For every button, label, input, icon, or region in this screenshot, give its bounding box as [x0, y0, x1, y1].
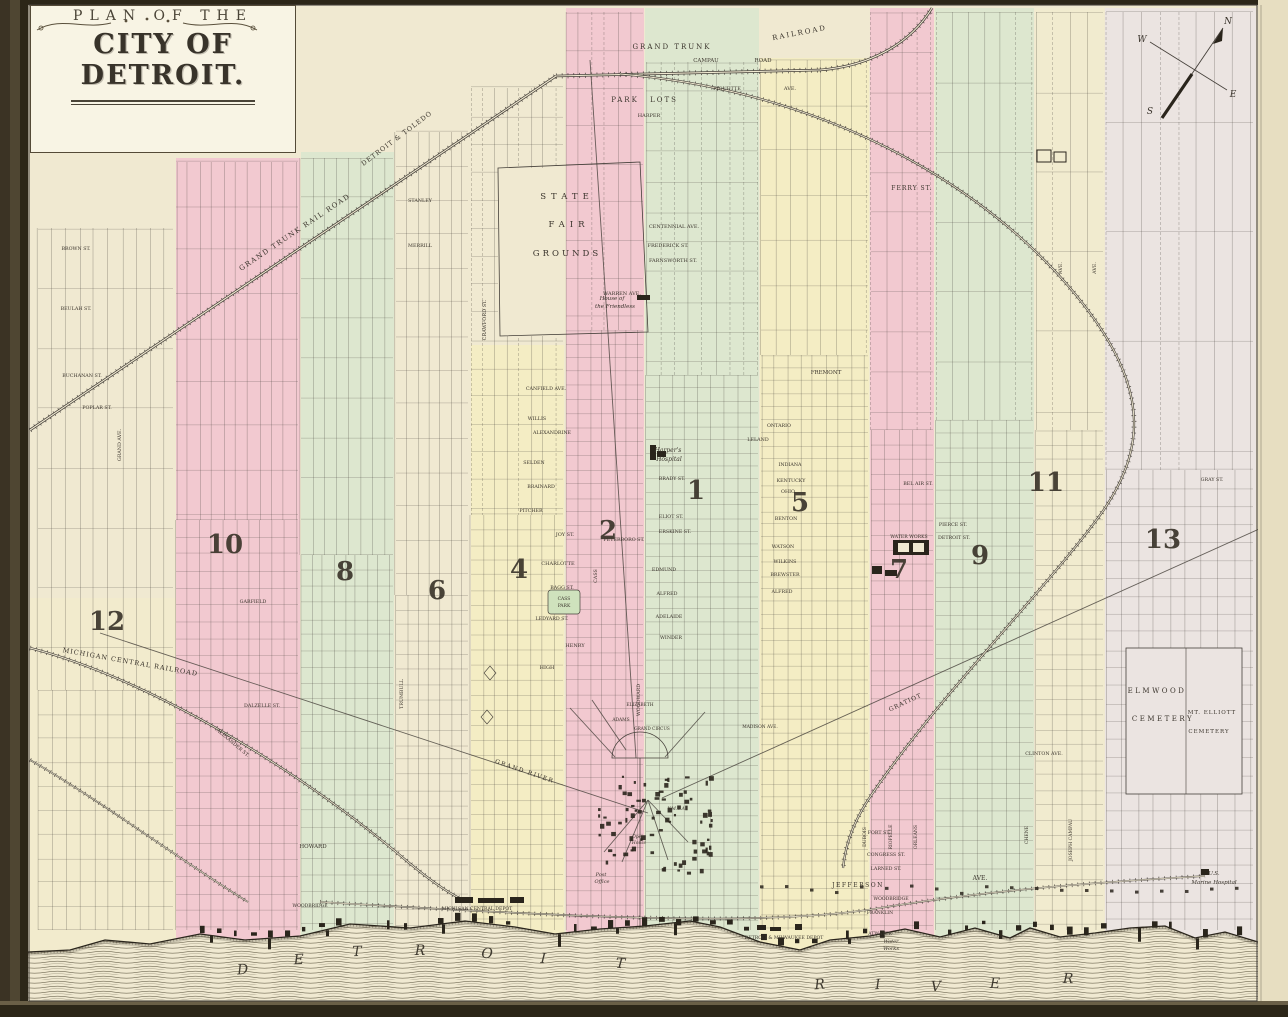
landmark-building: [770, 927, 781, 931]
river-name-letter: O: [481, 946, 493, 962]
street-label: HARPER: [638, 113, 661, 119]
landmark-building: [455, 897, 473, 903]
street-label: ONTARIO: [767, 423, 791, 429]
river-name-letter: R: [813, 977, 826, 994]
ward-band: [935, 8, 1034, 1000]
street-label: JEFFERSON: [831, 882, 884, 889]
ward-number: 5: [791, 488, 809, 518]
river-name-letter: R: [414, 943, 426, 959]
street-label: BRADY ST.: [659, 476, 686, 482]
street-label: CRAWFORD ST.: [482, 299, 488, 340]
street-label: HOWARD: [299, 844, 327, 850]
street-label: WINDER: [660, 635, 682, 641]
street-label: ERSKINE ST.: [659, 529, 692, 535]
street-label: GRAY ST.: [1201, 477, 1224, 483]
street-label: CLINTON AVE.: [1025, 751, 1063, 757]
street-label: AVE.: [783, 86, 797, 92]
street-label: GRAND AVE.: [117, 428, 123, 461]
street-label: CAMPAU: [693, 58, 719, 64]
title-flourish-icon: [31, 14, 263, 34]
street-label: ORLEANS: [913, 825, 919, 849]
street-label: ATWATER: [867, 931, 892, 937]
title-cartouche: PLAN OF THE CITY OF DETROIT.: [30, 5, 296, 153]
ward-number: 11: [1028, 468, 1064, 498]
street-label: FREDERICK ST.: [647, 243, 688, 249]
street-label: DALZELLE ST.: [244, 703, 281, 709]
wharf: [268, 939, 271, 949]
street-label: FORT ST.: [868, 830, 891, 836]
wharf: [442, 924, 445, 933]
street-label: ELIOT ST.: [659, 514, 684, 520]
cass-park: [548, 590, 580, 614]
street-label: RAILROAD: [772, 24, 828, 42]
ward-number: 1: [687, 476, 705, 506]
landmark-building: [478, 898, 504, 903]
street-label: MICHIGAN CENTRAL DEPOT: [442, 906, 513, 912]
street-label: ROAD: [754, 58, 772, 64]
street-label: FREMONT: [811, 370, 842, 376]
street-label: Opera: [632, 835, 646, 840]
street-label: ELMWOOD: [1128, 687, 1187, 695]
ward-band: [176, 158, 300, 1000]
street-label: CEMETERY: [1132, 715, 1194, 723]
ward-number: 4: [510, 555, 528, 585]
ward-number: 2: [599, 516, 617, 546]
ward-number: 9: [971, 541, 989, 571]
street-label: JOSEPH CAMPAU: [1068, 819, 1074, 862]
map-title-line2: CITY OF DETROIT.: [31, 29, 295, 91]
street-label: BRAINARD: [527, 484, 555, 490]
street-label: DETROIT & MILWAUKEE DEPOT: [745, 935, 825, 941]
landmark-building: [872, 566, 882, 574]
street-label: AVE.: [1092, 262, 1098, 275]
river-name-letter: R: [1062, 971, 1074, 987]
street-label: ALFRED: [656, 591, 678, 597]
landmark-building: [757, 925, 766, 930]
street-label: FERRY ST.: [891, 185, 932, 192]
street-label: FARNSWORTH ST.: [649, 258, 697, 264]
street-label: House of: [599, 296, 626, 302]
street-label: FRANKLIN: [867, 910, 893, 916]
street-label: Marine Hospital: [1190, 880, 1237, 886]
street-label: INDIANA: [779, 462, 802, 468]
compass-letter: S: [1147, 107, 1153, 117]
street-label: Office: [595, 879, 610, 885]
street-label: KENTUCKY: [777, 478, 807, 484]
street-label: LARNED ST.: [871, 866, 902, 872]
street-label: BROWN ST.: [61, 246, 91, 252]
street-label: CENTENNIAL AVE.: [649, 224, 700, 230]
street-label: ADAMS: [611, 718, 629, 723]
street-label: WOODBRIDGE: [873, 896, 908, 902]
river-name-letter: E: [989, 976, 1000, 992]
street-label: WILKINS: [774, 559, 797, 565]
street-label: BUCHANAN ST.: [62, 373, 102, 379]
street-label: House: [631, 841, 647, 846]
landmark-building: [510, 897, 524, 903]
compass-letter: E: [1229, 90, 1237, 100]
street-label: HENRY: [565, 643, 585, 649]
street-label: GROUNDS: [533, 249, 601, 259]
street-label: MERRILL: [408, 243, 433, 249]
street-label: Y.M.C.A.: [668, 807, 687, 812]
street-label: PARK: [558, 603, 571, 609]
street-label: BEULAH ST.: [61, 306, 92, 312]
wharf: [326, 930, 329, 936]
street-label: Works: [883, 946, 899, 952]
street-label: LOTS: [650, 96, 678, 104]
street-label: Hospital: [655, 456, 682, 463]
ward-number: 6: [428, 576, 446, 606]
street-label: GARFIELD: [240, 599, 267, 605]
street-label: WILLIS: [528, 416, 546, 422]
street-label: STATE: [540, 192, 594, 202]
street-label: AVE.: [1058, 262, 1064, 275]
street-label: LELAND: [747, 437, 769, 443]
street-label: WATSON: [772, 544, 795, 550]
ward-number: 10: [207, 530, 243, 560]
ward-number: 7: [890, 555, 908, 585]
street-label: BAGG ST.: [550, 585, 574, 591]
street-label: CANFIELD AVE.: [526, 386, 567, 392]
street-label: CASS: [558, 596, 571, 602]
street-label: Harper's: [654, 447, 682, 454]
street-label: LEDYARD ST.: [535, 616, 569, 622]
street-label: CHENE: [1024, 826, 1030, 844]
street-label: GRAND TRUNK: [632, 43, 711, 51]
compass-letter: N: [1223, 17, 1233, 27]
street-label: ADELAIDE: [655, 614, 683, 620]
compass-letter: W: [1137, 35, 1147, 45]
street-label: SELDEN: [523, 460, 545, 466]
wharf: [848, 939, 851, 944]
ward-number: 8: [336, 557, 354, 587]
landmark-building: [795, 924, 802, 930]
street-label: FAIR: [548, 220, 589, 230]
map-root: DETROITRIVER GRAND TRUNKRAILROADCAMPAURO…: [0, 0, 1288, 1017]
wharf: [1138, 928, 1141, 942]
street-label: CEMETERY: [1188, 729, 1229, 735]
ward-band: [1105, 8, 1256, 1000]
street-label: ALFRED: [771, 589, 793, 595]
street-label: PITCHER: [519, 508, 543, 514]
wharf: [1196, 938, 1199, 949]
street-label: CONGRESS ST.: [867, 852, 906, 858]
street-label: POPLAR ST.: [82, 405, 112, 411]
street-label: DETROIT ST.: [938, 535, 970, 541]
street-label: Water: [883, 939, 899, 945]
wharf: [616, 928, 619, 933]
street-label: HIGH: [540, 665, 555, 671]
river-name-letter: D: [235, 962, 248, 979]
river-name-letter: E: [292, 952, 304, 969]
street-label: PIQUETTE: [713, 86, 741, 92]
title-underline: [71, 100, 255, 105]
street-label: MADISON AVE.: [742, 725, 778, 730]
street-label: DUBOIS: [862, 827, 868, 847]
street-label: PIERCE ST.: [939, 522, 968, 528]
street-label: AVE.: [972, 875, 988, 882]
street-label: PARK: [611, 96, 639, 104]
street-label: ELIZABETH: [626, 703, 653, 708]
ward-number: 12: [89, 607, 125, 637]
wharf: [558, 934, 561, 947]
street-label: GRAND CIRCUS: [634, 726, 670, 731]
street-label: STANLEY: [408, 198, 433, 204]
street-label: WOODWARD: [636, 684, 642, 716]
street-label: BREWSTER: [770, 572, 800, 578]
street-label: BEL AIR ST.: [903, 481, 933, 487]
ward-number: 13: [1145, 525, 1181, 555]
street-label: CHARLOTTE: [541, 561, 575, 567]
street-label: ALEXANDRINE: [532, 430, 572, 436]
street-label: Post: [595, 872, 608, 878]
street-label: DETROIT & TOLEDO: [360, 109, 434, 168]
street-label: the Friendless: [595, 304, 635, 310]
wharf: [674, 923, 677, 935]
street-label: WATER WORKS: [890, 534, 927, 540]
street-label: EDMUND: [652, 567, 676, 573]
street-label: U.S.: [1208, 871, 1219, 877]
street-label: JOY ST.: [555, 532, 575, 538]
wharf: [210, 936, 213, 943]
street-label: RIOPELLE: [888, 825, 894, 850]
street-label: CASS: [593, 569, 599, 583]
street-label: MT. ELLIOTT: [1188, 710, 1236, 716]
street-label: WOODBRIDGE: [292, 903, 327, 909]
street-label: TRUMBULL: [399, 678, 405, 709]
